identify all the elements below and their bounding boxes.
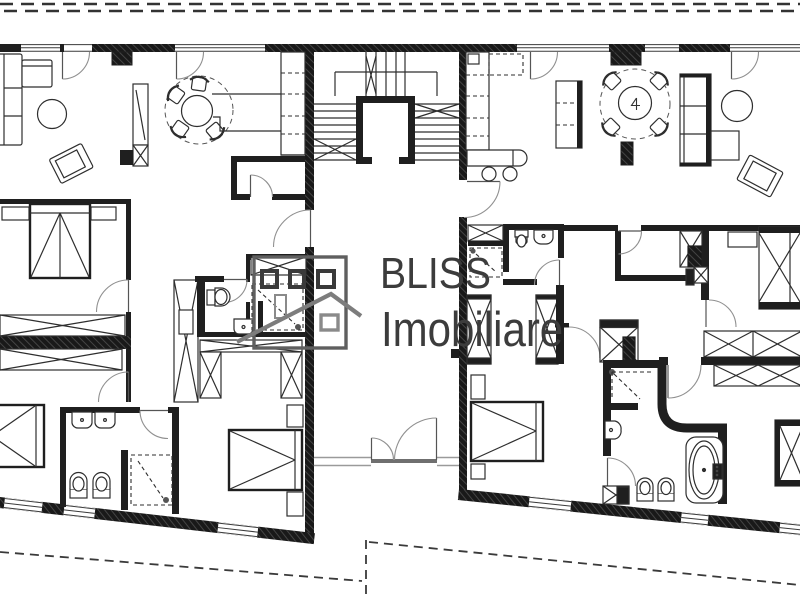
svg-text:Imobiliare: Imobiliare <box>381 302 563 357</box>
svg-text:BLISS: BLISS <box>380 249 491 297</box>
